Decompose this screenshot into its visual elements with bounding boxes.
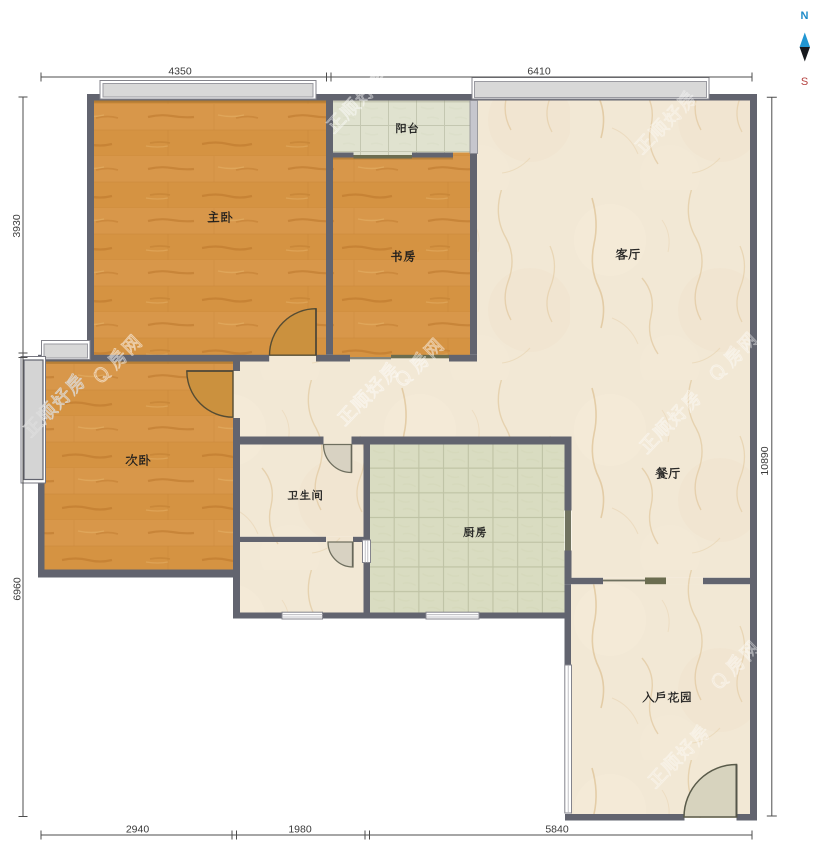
svg-text:S: S bbox=[801, 76, 808, 88]
svg-text:4350: 4350 bbox=[168, 66, 192, 78]
svg-text:10890: 10890 bbox=[759, 446, 771, 475]
svg-text:N: N bbox=[801, 10, 809, 22]
svg-text:6410: 6410 bbox=[527, 66, 551, 78]
svg-text:3930: 3930 bbox=[11, 214, 23, 238]
svg-text:2940: 2940 bbox=[126, 824, 150, 836]
svg-text:1980: 1980 bbox=[288, 824, 312, 836]
svg-text:6960: 6960 bbox=[12, 577, 24, 601]
svg-text:5840: 5840 bbox=[545, 824, 569, 836]
